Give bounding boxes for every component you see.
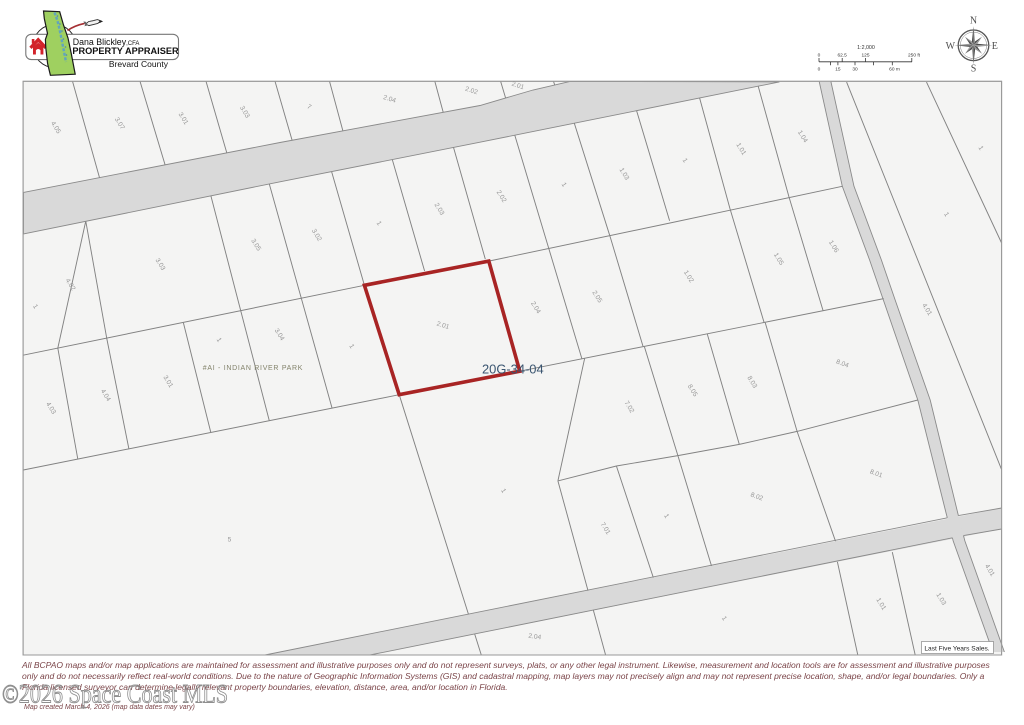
svg-text:1:2,000: 1:2,000	[857, 45, 875, 51]
svg-text:W: W	[946, 41, 956, 52]
svg-text:All BCPAO maps and/or map appl: All BCPAO maps and/or map applications a…	[21, 660, 991, 670]
svg-text:60 m: 60 m	[889, 67, 900, 73]
svg-text:PROPERTY APPRAISER: PROPERTY APPRAISER	[72, 46, 179, 56]
svg-text:0: 0	[818, 67, 821, 73]
svg-text:30: 30	[852, 67, 858, 73]
svg-text:15: 15	[835, 67, 841, 73]
svg-text:S: S	[971, 64, 977, 75]
svg-text:62.5: 62.5	[838, 53, 848, 59]
svg-text:Brevard County: Brevard County	[109, 59, 169, 69]
svg-text:250 ft: 250 ft	[908, 53, 921, 59]
svg-text:©2026 Space Coast MLS: ©2026 Space Coast MLS	[2, 680, 228, 709]
svg-text:E: E	[992, 41, 998, 52]
svg-text:N: N	[970, 16, 977, 27]
svg-text:Last Five Years Sales.: Last Five Years Sales.	[924, 646, 989, 653]
svg-text:125: 125	[861, 53, 869, 59]
svg-text:20G-34-04: 20G-34-04	[482, 362, 544, 377]
svg-text:#AI - INDIAN RIVER PARK: #AI - INDIAN RIVER PARK	[203, 365, 303, 372]
svg-text:5: 5	[228, 537, 232, 544]
svg-text:0: 0	[818, 53, 821, 59]
